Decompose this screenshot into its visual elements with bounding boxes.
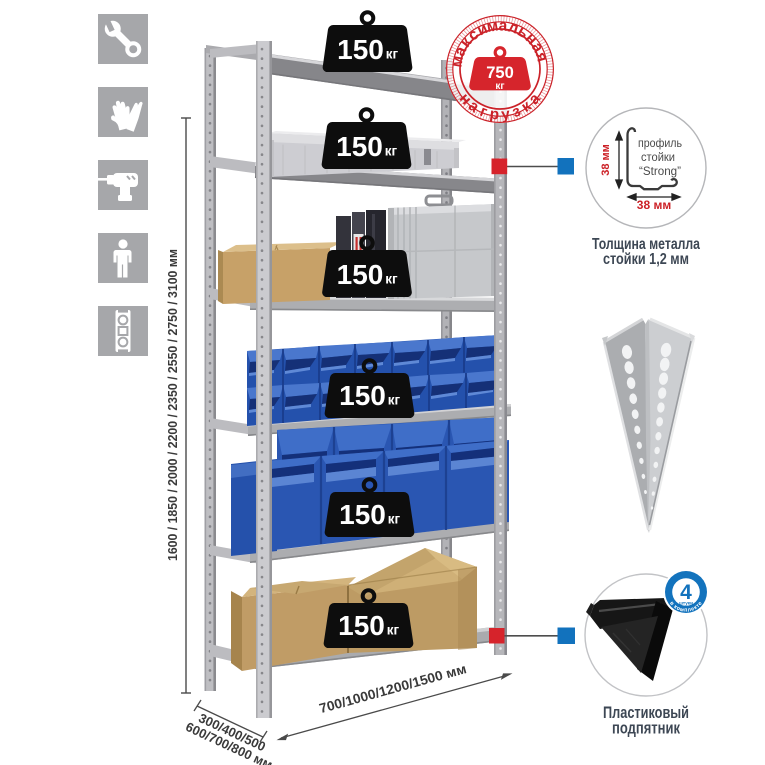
svg-text:“Strong”: “Strong” — [639, 166, 681, 178]
svg-text:150: 150 — [339, 499, 386, 530]
svg-text:кг: кг — [385, 272, 398, 287]
svg-text:1600 / 1850 / 2000 / 2200 / 23: 1600 / 1850 / 2000 / 2200 / 2350 / 2550 … — [165, 249, 180, 561]
svg-text:кг: кг — [388, 393, 401, 408]
svg-text:кг: кг — [385, 144, 398, 159]
svg-text:150: 150 — [337, 34, 384, 65]
svg-text:750: 750 — [486, 64, 514, 82]
svg-text:150: 150 — [337, 259, 384, 290]
svg-text:кг: кг — [495, 81, 504, 92]
svg-text:подпятник: подпятник — [612, 720, 681, 738]
svg-text:стойки 1,2 мм: стойки 1,2 мм — [603, 251, 689, 268]
svg-text:штуки: штуки — [679, 601, 693, 606]
svg-text:кг: кг — [387, 623, 400, 638]
svg-text:стойки: стойки — [641, 152, 675, 164]
svg-text:38 мм: 38 мм — [637, 198, 672, 212]
svg-text:кг: кг — [386, 47, 399, 62]
svg-text:150: 150 — [336, 131, 383, 162]
svg-text:профиль: профиль — [638, 138, 682, 150]
svg-text:150: 150 — [339, 380, 386, 411]
svg-text:кг: кг — [388, 512, 401, 527]
svg-text:38 мм: 38 мм — [600, 144, 612, 176]
svg-text:150: 150 — [338, 610, 385, 641]
